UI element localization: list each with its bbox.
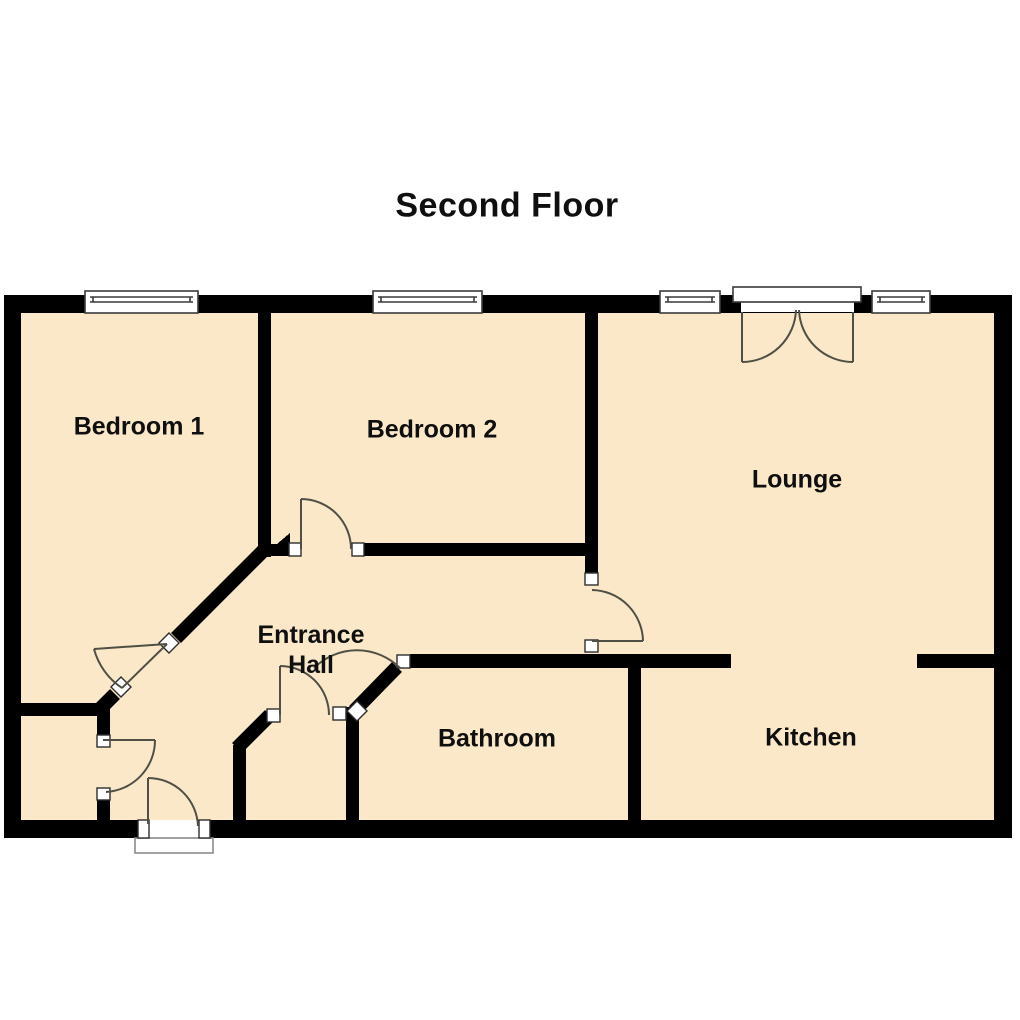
jamb-store-bottom xyxy=(97,788,110,800)
wall-bedroom2-bottom xyxy=(364,543,585,556)
jamb-bedroom2-right xyxy=(352,543,364,556)
wall-bathroom-top xyxy=(410,654,731,668)
floor-rect xyxy=(4,295,1012,838)
room-label-bathroom: Bathroom xyxy=(438,725,556,754)
wall-cupboard-left xyxy=(233,745,246,820)
outer-wall-right xyxy=(994,295,1012,838)
wall-hall-lounge xyxy=(585,313,598,573)
bedroom2-window-icon xyxy=(373,291,482,313)
wall-bedroom1-bedroom2 xyxy=(258,313,271,557)
wall-bathroom-left xyxy=(346,707,359,820)
room-label-entrance-hall-line1: Entrance xyxy=(258,620,365,650)
outer-wall-left xyxy=(4,295,21,838)
wall-store-right-lower xyxy=(97,800,110,820)
room-label-bedroom2: Bedroom 2 xyxy=(367,416,498,445)
lounge-window-right-icon xyxy=(872,291,930,313)
room-label-kitchen: Kitchen xyxy=(765,724,857,753)
jamb-lounge-top xyxy=(585,573,598,585)
jamb-cupboard-right xyxy=(333,707,346,720)
jamb-bedroom2-left xyxy=(289,543,301,556)
wall-bathroom-kitchen xyxy=(628,668,641,820)
jamb-cupboard-left xyxy=(267,709,280,722)
wall-store-top xyxy=(21,703,100,716)
floor-area xyxy=(4,295,1012,838)
floorplan-drawing xyxy=(0,0,1020,1020)
room-label-entrance-hall-line2: Hall xyxy=(258,650,365,680)
room-label-lounge: Lounge xyxy=(752,466,842,495)
room-label-entrance-hall: Entrance Hall xyxy=(258,620,365,680)
bedroom1-window-icon xyxy=(85,291,198,313)
floorplan-page: Second Floor xyxy=(0,0,1020,1020)
room-label-bedroom1: Bedroom 1 xyxy=(74,413,205,442)
lounge-window-left-icon xyxy=(660,291,720,313)
wall-kitchen-top-right xyxy=(917,654,994,668)
